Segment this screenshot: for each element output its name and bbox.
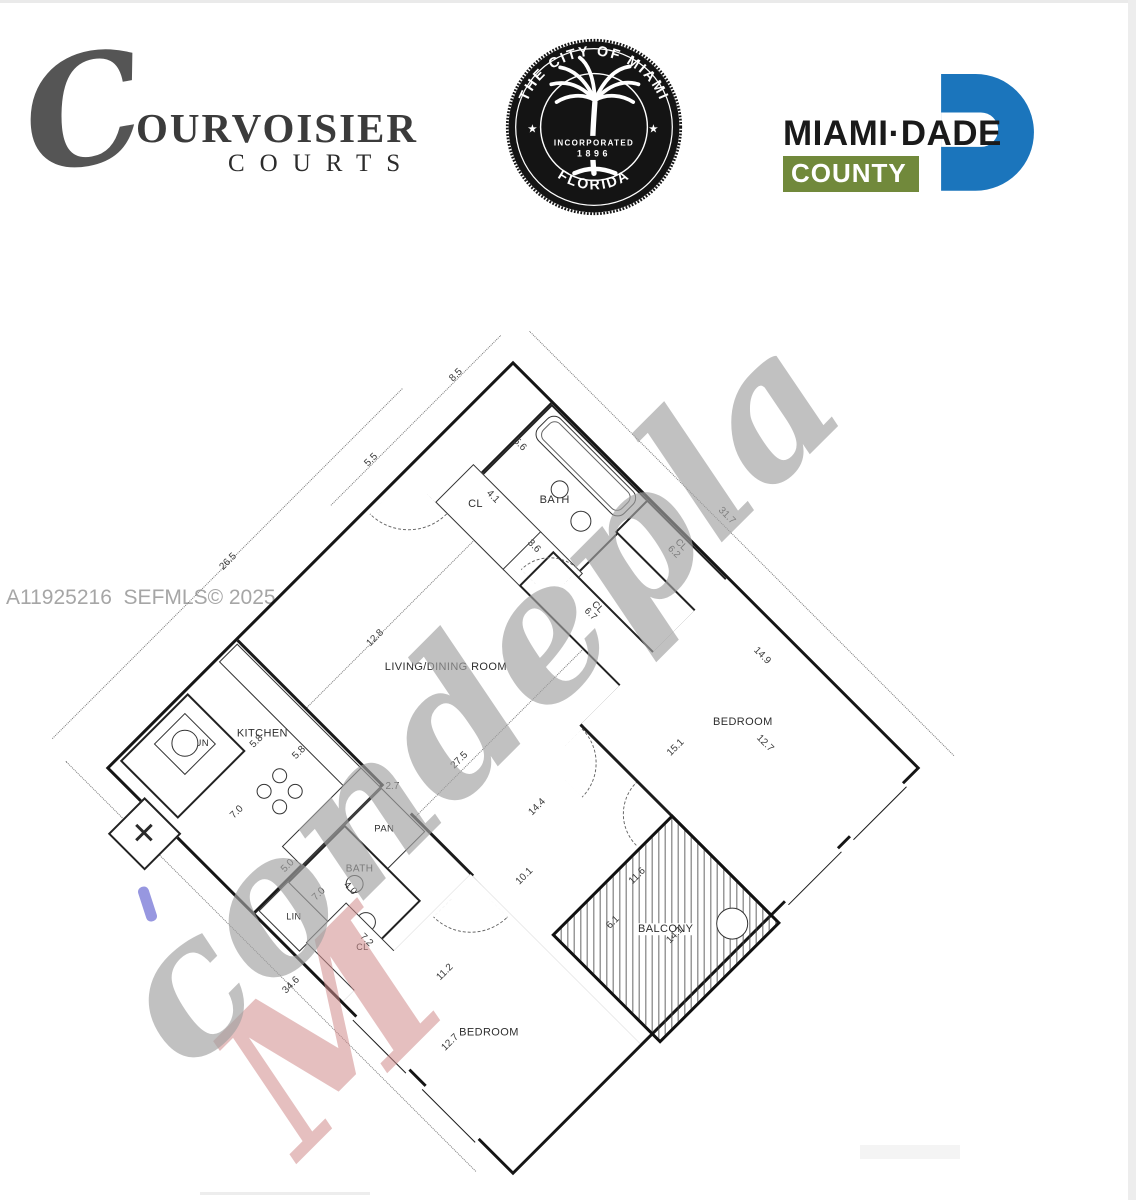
stove-burner	[269, 796, 290, 817]
dimension-label: 7.0	[228, 803, 246, 821]
dimension-label: 8.5	[447, 366, 465, 384]
dimension-label: 10.1	[514, 866, 536, 888]
dimension-label: 14.4	[526, 796, 548, 818]
room-label: CL	[468, 498, 483, 510]
apartment-outline: BATH CL CL 6.2 CL 6.7 BEDROOM LIVING	[106, 361, 921, 1176]
wall	[410, 813, 474, 877]
wall	[237, 639, 384, 786]
stove-burner	[253, 781, 274, 802]
shaft-cross-icon: ✕	[132, 816, 157, 851]
room-label: BEDROOM	[459, 1026, 519, 1038]
door-arc-entry	[369, 475, 447, 553]
county-text: COUNTY	[783, 156, 919, 192]
room-label: PAN	[374, 823, 394, 834]
room-label: BATH	[345, 863, 373, 874]
dimension-label: 31.7	[716, 505, 738, 527]
room-label: LIVING/DINING ROOM	[385, 661, 507, 673]
stove-burner	[269, 765, 290, 786]
miami-dade-text: MIAMI·DADE	[783, 114, 1002, 154]
room-label: BALCONY	[635, 923, 696, 935]
floor-plan: BATH CL CL 6.2 CL 6.7 BEDROOM LIVING	[0, 0, 1136, 1200]
floor-plan-page: C OURVOISIER COURTS THE CITY OF MIAMI FL…	[0, 0, 1136, 1200]
dimension-line	[305, 539, 475, 709]
room-label: LIN	[286, 911, 301, 921]
stove-burner	[285, 781, 306, 802]
dimension-label: 2.7	[385, 781, 399, 792]
dimension-label: 5.5	[362, 451, 380, 469]
dimension-label: 27.5	[449, 750, 471, 772]
room-label: BEDROOM	[713, 716, 773, 728]
